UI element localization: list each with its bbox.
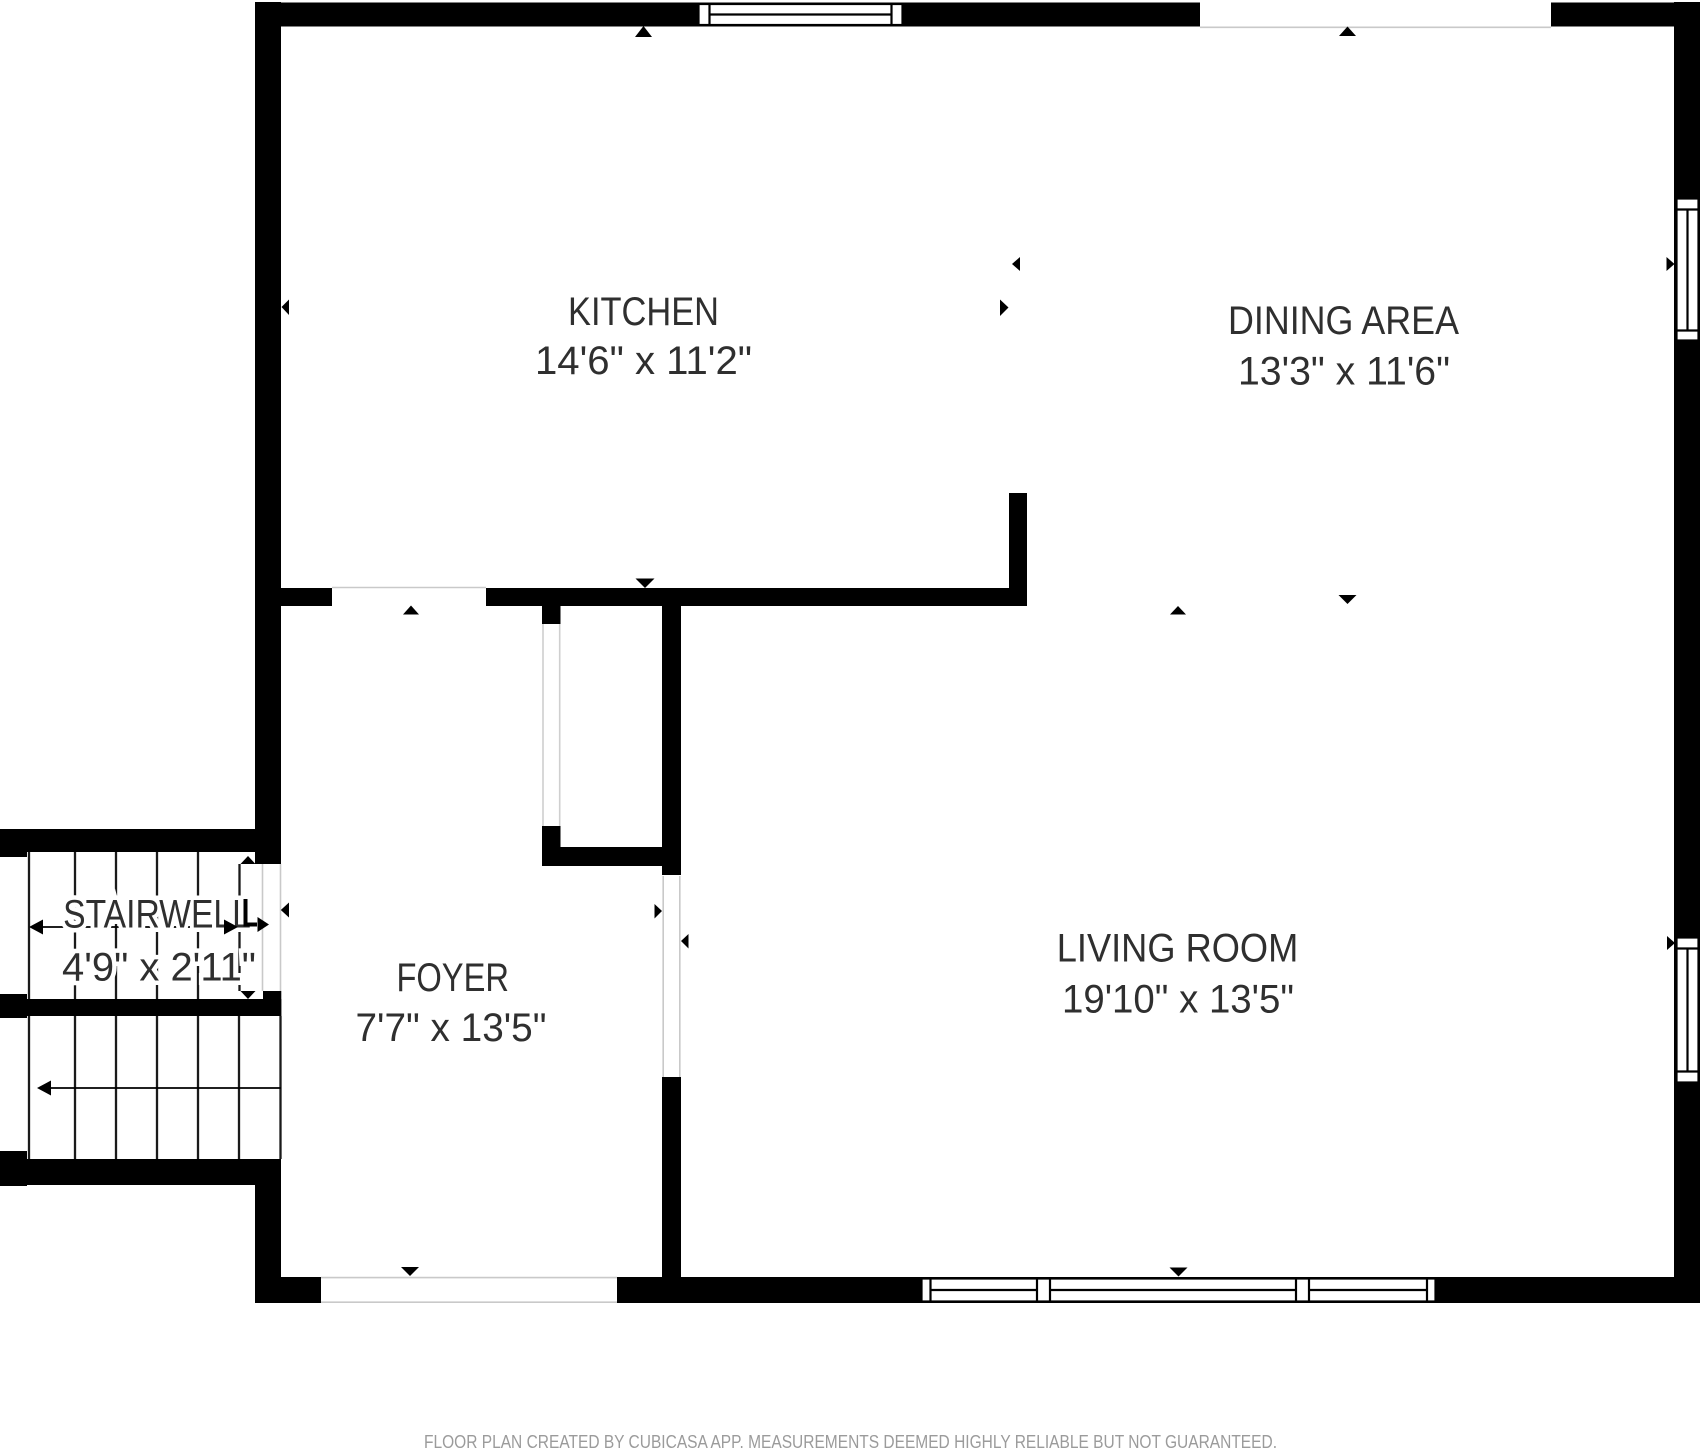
svg-text:KITCHEN: KITCHEN — [568, 290, 719, 334]
svg-text:13'3" x 11'6": 13'3" x 11'6" — [1238, 350, 1450, 394]
svg-text:14'6" x 11'2": 14'6" x 11'2" — [535, 339, 752, 383]
svg-text:FLOOR PLAN CREATED BY CUBICASA: FLOOR PLAN CREATED BY CUBICASA APP. MEAS… — [424, 1431, 1277, 1452]
svg-text:7'7" x 13'5": 7'7" x 13'5" — [356, 1006, 547, 1050]
svg-text:STAIRWELL: STAIRWELL — [63, 893, 251, 937]
svg-text:19'10" x 13'5": 19'10" x 13'5" — [1062, 978, 1294, 1022]
svg-text:FOYER: FOYER — [396, 956, 509, 1000]
svg-text:4'9" x 2'11": 4'9" x 2'11" — [62, 946, 256, 990]
svg-text:LIVING ROOM: LIVING ROOM — [1057, 927, 1299, 971]
svg-text:DINING AREA: DINING AREA — [1228, 299, 1459, 343]
